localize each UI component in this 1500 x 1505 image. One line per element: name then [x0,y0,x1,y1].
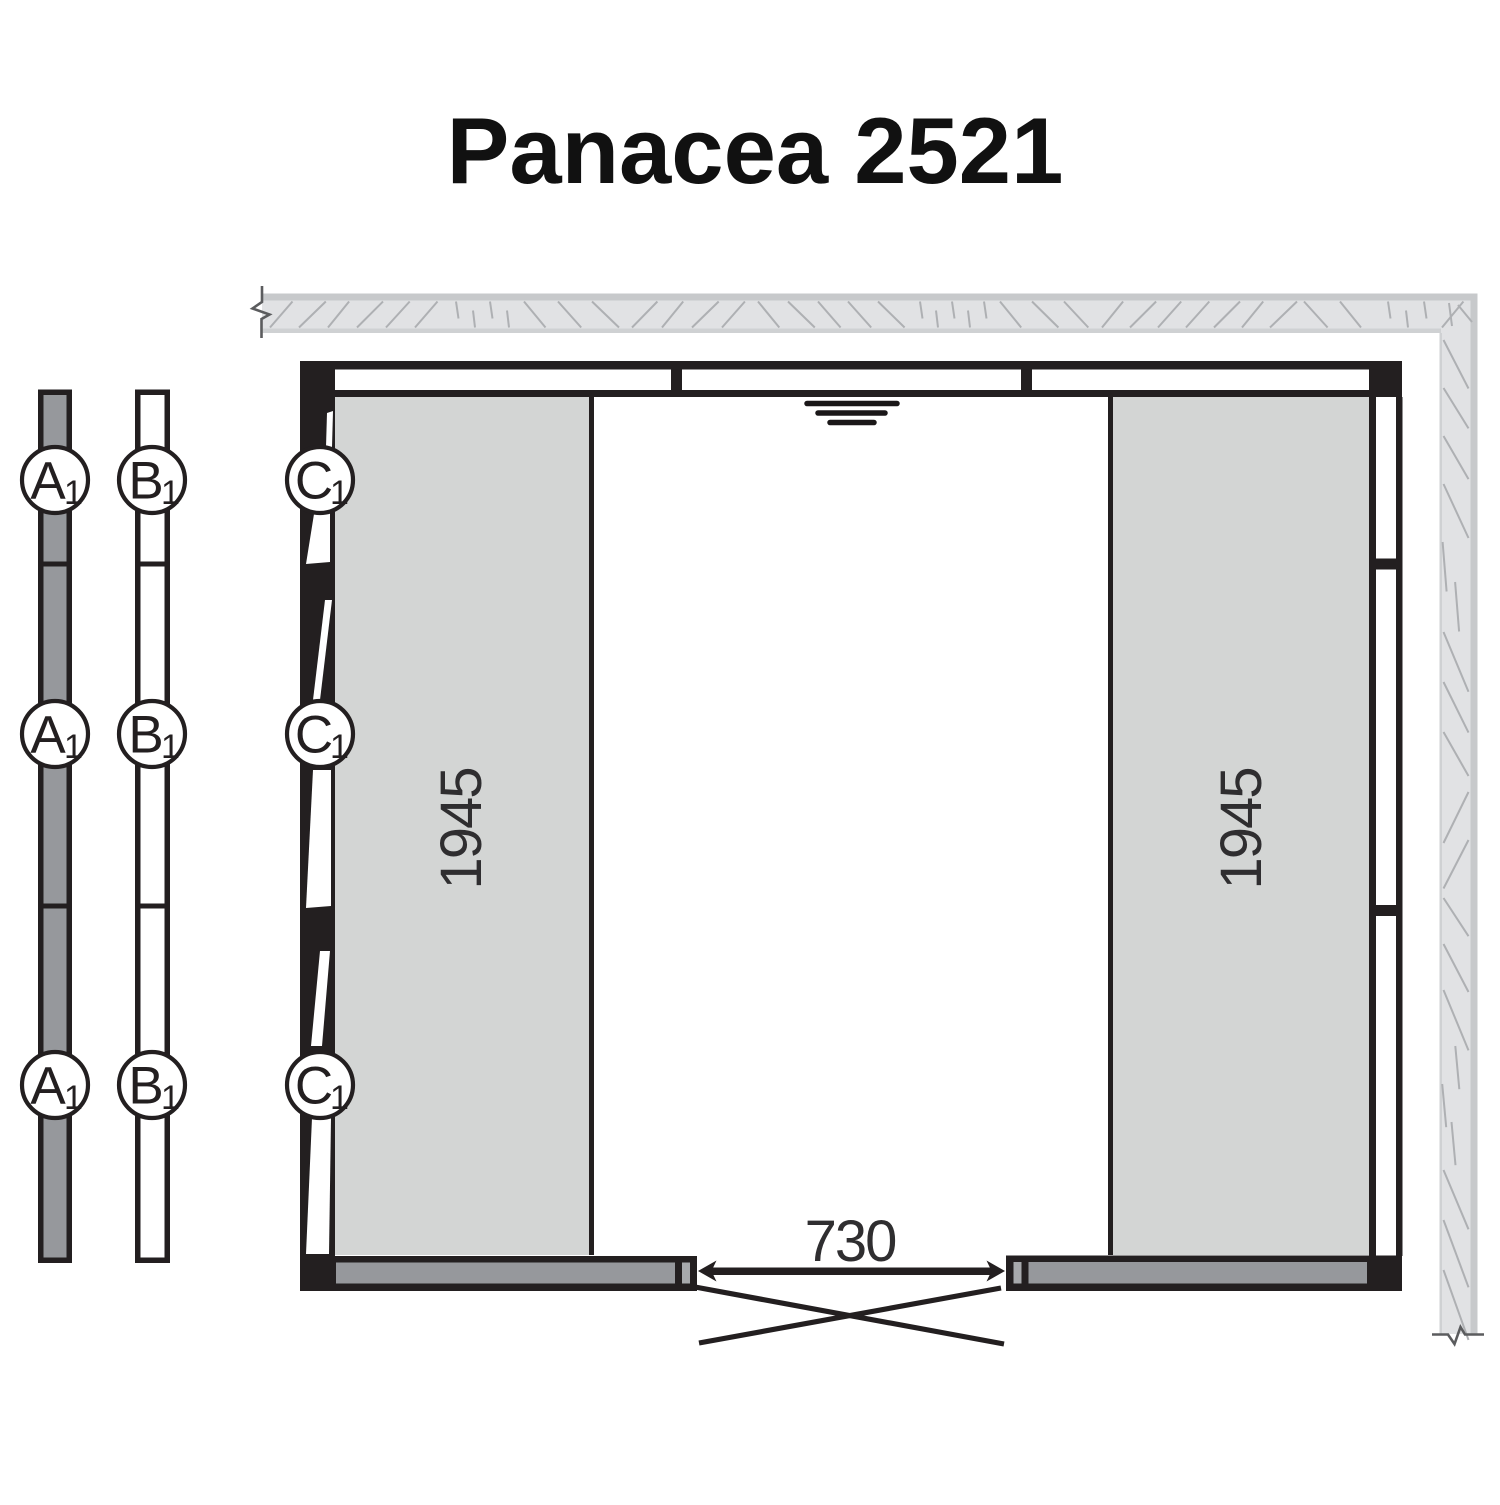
svg-text:1: 1 [161,728,180,766]
svg-text:1: 1 [330,728,349,766]
svg-text:B: B [128,452,163,511]
svg-text:Panacea 2521: Panacea 2521 [447,98,1064,203]
svg-text:A: A [30,706,66,765]
svg-text:1945: 1945 [429,768,494,889]
svg-text:1945: 1945 [1209,768,1274,889]
svg-text:1: 1 [64,1079,83,1117]
svg-text:1: 1 [161,1079,180,1117]
svg-text:1: 1 [161,474,180,512]
svg-text:B: B [128,706,163,765]
svg-text:1: 1 [64,474,83,512]
svg-text:B: B [128,1057,163,1116]
svg-text:A: A [30,452,66,511]
svg-text:C: C [295,1057,333,1116]
svg-text:1: 1 [330,474,349,512]
svg-text:1: 1 [330,1079,349,1117]
svg-text:C: C [295,452,333,511]
svg-text:A: A [30,1057,66,1116]
svg-text:730: 730 [805,1209,896,1274]
svg-text:C: C [295,706,333,765]
svg-text:1: 1 [64,728,83,766]
